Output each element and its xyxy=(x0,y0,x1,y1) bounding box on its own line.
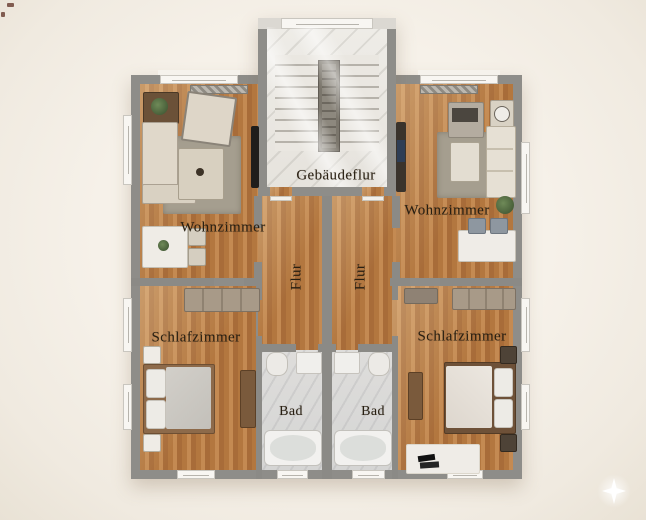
pillow xyxy=(146,369,166,398)
window-left-bedroom xyxy=(123,298,132,352)
pillow xyxy=(494,368,513,397)
tv-panel xyxy=(251,126,259,188)
nightstand xyxy=(500,434,517,452)
sink xyxy=(296,352,322,374)
bench xyxy=(408,372,423,420)
window-right-bedroom2 xyxy=(521,384,530,430)
bed-duvet xyxy=(166,367,211,429)
wall-living-bedroom-right xyxy=(440,278,522,286)
window-bottom-right-bath xyxy=(352,470,385,479)
window-right-living xyxy=(521,142,530,214)
window-right-bedroom xyxy=(521,298,530,352)
dining-chair xyxy=(188,248,206,266)
sink xyxy=(334,352,360,374)
nightstand xyxy=(500,346,517,364)
bathtub xyxy=(334,430,392,466)
wall-bath-top-right xyxy=(332,344,336,352)
tv xyxy=(452,108,478,122)
label-living-room-left: Wohnzimmer xyxy=(180,220,265,237)
window-bottom-left-bedroom xyxy=(177,470,215,479)
wall-bath-top-left xyxy=(256,344,296,352)
party-wall xyxy=(322,196,332,479)
potted-plant xyxy=(151,98,168,115)
nightstand xyxy=(143,434,161,452)
wall-bedroom-bath-left xyxy=(256,350,262,479)
tower-sill-left xyxy=(258,18,281,29)
bed-duvet xyxy=(446,366,492,428)
label-bathroom-right: Bad xyxy=(361,404,385,420)
tower-sill-right xyxy=(373,18,396,29)
desk xyxy=(458,230,516,262)
armchair xyxy=(181,91,237,147)
label-bathroom-left: Bad xyxy=(279,404,303,420)
toilet xyxy=(368,352,390,376)
artifact-speck xyxy=(7,3,14,7)
label-hallway-left: Flur xyxy=(289,264,306,291)
window-top-left-living xyxy=(160,75,238,84)
label-hallway-right: Flur xyxy=(353,264,370,291)
clock-face xyxy=(494,106,510,122)
label-bedroom-right: Schlafzimmer xyxy=(418,329,507,346)
wardrobe xyxy=(184,288,260,312)
artifact-speck xyxy=(1,12,5,17)
shelf xyxy=(404,288,438,304)
wall-living-bedroom-left xyxy=(244,278,256,286)
entry-door-opening-left xyxy=(270,187,292,196)
stairwell-window xyxy=(281,18,373,29)
wall-living-hall-left xyxy=(254,262,262,278)
toilet xyxy=(266,352,288,376)
label-living-room-right: Wohnzimmer xyxy=(404,203,489,220)
window-left-living xyxy=(123,115,132,185)
wall-living-hall-right xyxy=(392,196,400,228)
pillow xyxy=(146,400,166,429)
wall-bedroom-hall-right xyxy=(392,278,398,300)
sofa-cushion-line xyxy=(487,148,513,150)
entry-door-leaf-left xyxy=(270,196,292,201)
window-left-bedroom2 xyxy=(123,384,132,430)
wall-living-bedroom-left xyxy=(131,278,214,286)
sofa xyxy=(486,126,516,198)
entry-door-opening-right xyxy=(362,187,384,196)
window-bottom-left-bath xyxy=(277,470,308,479)
table-decor xyxy=(196,168,204,176)
pillow xyxy=(494,399,513,428)
radiator xyxy=(420,85,478,94)
label-bedroom-left: Schlafzimmer xyxy=(152,330,241,347)
nightstand xyxy=(143,346,161,364)
bathtub xyxy=(264,430,322,466)
tv-screen xyxy=(397,140,405,162)
stair-railing xyxy=(318,60,340,152)
entry-door-leaf-right xyxy=(362,196,384,201)
wardrobe xyxy=(452,288,516,310)
dresser xyxy=(240,370,256,428)
label-building-hall: Gebäudeflur xyxy=(296,168,375,185)
desk-chair xyxy=(468,218,486,234)
wall-bedroom-bath-right xyxy=(392,350,398,479)
floor-plan-scene: Gebäudeflur Wohnzimmer Wohnzimmer Flur F… xyxy=(0,0,646,520)
coffee-table xyxy=(450,142,480,182)
wall-living-hall-right xyxy=(392,262,400,278)
potted-plant xyxy=(496,196,514,214)
desk-chair xyxy=(490,218,508,234)
window-top-right-living xyxy=(420,75,498,84)
table-plant xyxy=(158,240,169,251)
wall-bath-top-left xyxy=(318,344,322,352)
sofa-cushion-line xyxy=(487,170,513,172)
